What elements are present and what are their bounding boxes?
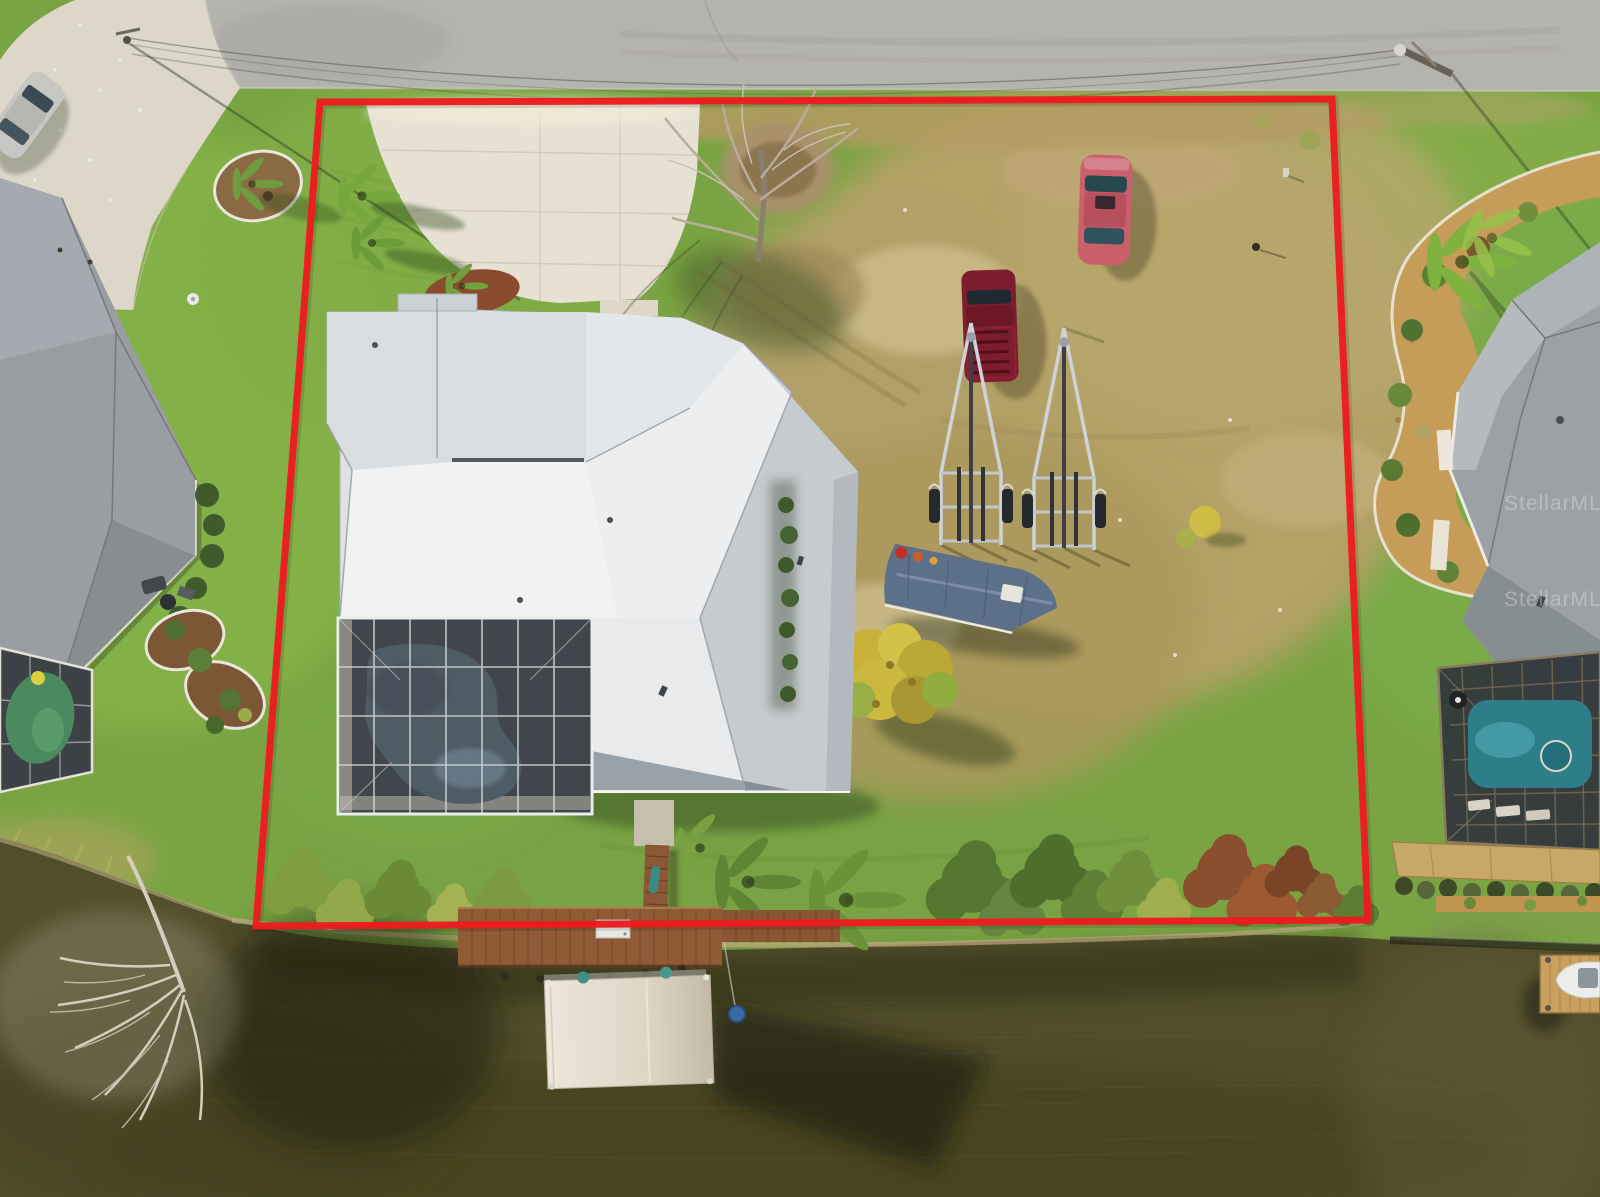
mooring-float [729,1006,745,1022]
spa [1541,741,1571,771]
boathouse-canopy [544,975,714,1089]
road [205,0,1600,91]
palm-shadow-on-water [200,910,500,1150]
house-side-hedge [770,480,799,710]
pool-enclosure [338,618,592,814]
aerial-photo-canvas: StellarMLS StellarMLS [0,0,1600,1197]
right-neighbor-pool-enclosure [1438,652,1600,850]
watermark-text: StellarMLS [1504,492,1600,515]
right-shore-grass [1436,912,1600,936]
aerial-photo: StellarMLS StellarMLS [0,0,1600,1197]
pool-float [31,671,45,685]
right-shore-mulch [1436,896,1600,912]
watermark-text: StellarMLS [1504,588,1600,611]
left-neighbor-pool-enclosure [0,648,92,792]
